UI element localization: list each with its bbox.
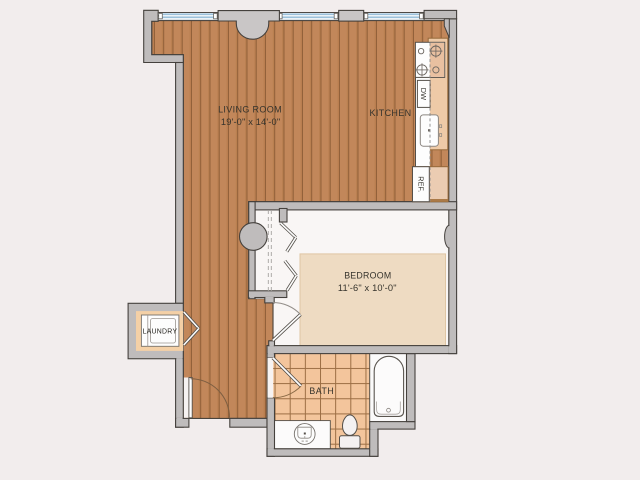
svg-text:LIVING ROOM: LIVING ROOM [218,105,282,115]
svg-text:KITCHEN: KITCHEN [370,108,412,118]
svg-text:BEDROOM: BEDROOM [344,271,391,281]
svg-text:DW: DW [419,88,428,100]
svg-text:LAUNDRY: LAUNDRY [142,329,177,336]
svg-text:BATH: BATH [309,386,334,396]
svg-text:19'-0" x 14'-0": 19'-0" x 14'-0" [221,117,280,127]
svg-text:11'-6" x 10'-0": 11'-6" x 10'-0" [338,283,397,293]
svg-text:REF.: REF. [417,176,426,192]
